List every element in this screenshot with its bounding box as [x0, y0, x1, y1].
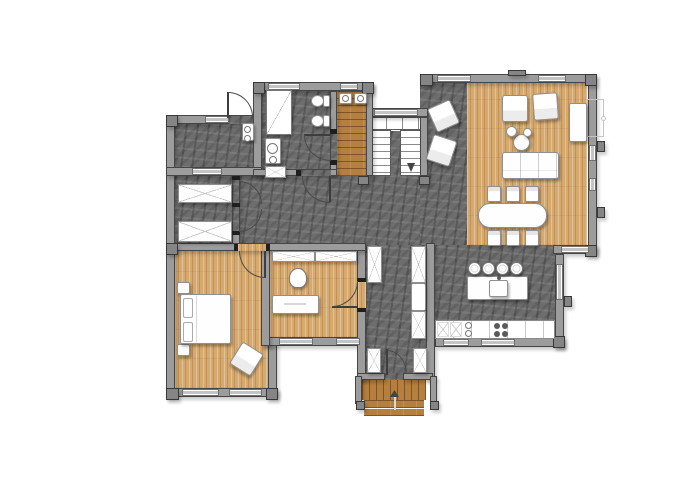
bar-stool-1 — [468, 262, 481, 275]
gap-office-door — [358, 282, 366, 308]
tv-outline-knob — [601, 116, 606, 121]
dining-chair-bottom-1 — [487, 230, 501, 246]
pillar-top-protrusion — [508, 70, 526, 76]
dining-chair-top-3 — [525, 186, 539, 202]
bar-stool-2 — [482, 262, 495, 275]
gap-bedroom-door — [238, 244, 266, 251]
bar-stool-4 — [510, 262, 523, 275]
central-hall-floor — [240, 176, 428, 245]
window-kitchen-bottom-2 — [481, 339, 515, 346]
stove-burner-1 — [494, 323, 500, 329]
dining-chair-bottom-2 — [506, 230, 520, 246]
window-bathroom-top — [268, 83, 300, 90]
bed-pillow-1 — [183, 298, 193, 318]
toilet-tank-2 — [323, 115, 330, 127]
window-kitchen-right — [556, 264, 563, 300]
jamb-office-door-bottom — [357, 308, 366, 312]
window-living-top-2 — [538, 75, 566, 82]
office-closet-2 — [315, 251, 357, 262]
sauna-basin-2-bowl — [357, 95, 364, 102]
office-desk-drawer — [284, 303, 306, 305]
pillar-living-ne — [585, 74, 597, 86]
wall-stairs-right — [420, 117, 428, 176]
nightstand-top — [177, 282, 190, 294]
pillar-stair-foot-left — [358, 176, 369, 185]
window-office-bottom-1 — [279, 338, 313, 345]
window-kitchen-bottom-1 — [443, 339, 469, 346]
sauna-basin-1-bowl — [342, 95, 349, 102]
stub-kitchen-right — [564, 296, 572, 307]
gap-sauna-door — [331, 134, 337, 160]
dining-chair-bottom-3 — [525, 230, 539, 246]
pillar-left-mid — [166, 243, 178, 255]
stove-burner-2 — [502, 323, 508, 329]
side-door-arc — [228, 92, 253, 117]
floor-plan-canvas — [0, 0, 700, 500]
stub-living-right-2 — [597, 207, 605, 218]
bath-faucet — [269, 156, 277, 164]
entry-wardrobe-right-2 — [411, 283, 426, 311]
porch-rail-right — [430, 376, 437, 404]
office-chair — [289, 268, 307, 288]
wall-entry-kitchen — [426, 243, 435, 380]
window-living-top-1 — [437, 75, 471, 82]
dining-chair-top-2 — [506, 186, 520, 202]
bar-stool-3 — [496, 262, 509, 275]
coffee-table-small-2 — [523, 128, 532, 137]
wall-left-outer — [166, 115, 175, 397]
window-office-bottom-2 — [336, 338, 360, 345]
jamb-sauna-door-bottom — [330, 160, 337, 165]
jamb-bedroom-door-right — [266, 244, 270, 251]
dining-chair-top-1 — [487, 186, 501, 202]
window-stairs-top — [374, 109, 418, 116]
entry-cabinet-left-lower — [367, 348, 381, 373]
stove-burner-3 — [494, 331, 500, 337]
pillar-living-nw — [420, 74, 433, 86]
living-armchair-2 — [532, 92, 559, 121]
entry-wardrobe-right-3 — [411, 311, 426, 339]
stub-living-right-1 — [597, 141, 605, 152]
dressing-wardrobe-1 — [178, 184, 232, 203]
jamb-bath-door-left — [296, 170, 301, 176]
wall-utility-bath-divider — [253, 82, 262, 176]
pillar-stair-foot-right — [419, 176, 430, 185]
porch-rail-left — [355, 376, 362, 404]
pillar-bath-nw — [253, 82, 265, 94]
bed-pillow-2 — [183, 322, 193, 342]
pillar-bedroom-se — [266, 388, 278, 400]
pillar-utility-nw — [166, 115, 178, 127]
jamb-dressing-1 — [232, 176, 240, 180]
window-bedroom-bottom-1 — [182, 389, 219, 396]
jamb-sauna-door-top — [330, 129, 337, 134]
bath-basin — [267, 143, 278, 154]
utility-door-opening — [192, 168, 222, 175]
counter-sink-bowl-1 — [465, 322, 472, 329]
jamb-office-door-top — [357, 278, 366, 282]
window-living-right-2 — [589, 178, 596, 191]
dining-table — [478, 203, 547, 228]
counter-xcell-1 — [437, 322, 449, 337]
stairs-landing — [370, 117, 422, 130]
nightstand-bottom — [177, 344, 190, 356]
pillar-bedroom-sw — [166, 388, 179, 400]
living-armchair-1 — [502, 95, 528, 122]
entry-wardrobe-left — [367, 246, 382, 283]
window-utility-top — [205, 116, 229, 123]
toilet-tank-1 — [323, 95, 330, 107]
island-faucet — [497, 276, 501, 280]
sofa — [502, 152, 559, 179]
bath-cabinet — [265, 166, 286, 178]
wall-entry-bottom-right — [403, 373, 433, 380]
bed-blanket-line — [196, 296, 197, 342]
island-sink — [489, 280, 508, 297]
window-living-bottom — [561, 246, 589, 253]
window-bedroom-bottom-2 — [229, 389, 262, 396]
window-sauna-top — [340, 83, 358, 90]
window-living-right-1 — [589, 145, 596, 161]
stairs-flight-left — [370, 130, 391, 176]
office-closet-1 — [272, 251, 315, 262]
porch-post-right — [430, 401, 439, 410]
utility-sink-bowl-2 — [244, 135, 251, 142]
coffee-table-small-1 — [506, 126, 517, 137]
entry-cabinet-right-lower — [413, 348, 427, 373]
dressing-wardrobe-2 — [178, 221, 232, 242]
jamb-bedroom-door-left — [234, 244, 238, 251]
counter-xcell-2 — [450, 322, 462, 337]
stove-burner-4 — [502, 331, 508, 337]
wall-sauna-stairs-divider — [366, 82, 373, 176]
porch-post-left — [356, 401, 365, 410]
utility-sink-bowl-1 — [244, 126, 251, 133]
stairs-core — [391, 131, 400, 176]
shower — [266, 90, 292, 135]
counter-sink-bowl-2 — [465, 330, 472, 337]
tv-cabinet — [569, 103, 587, 142]
porch-step-2 — [364, 409, 424, 416]
entry-wardrobe-right-1 — [411, 246, 426, 283]
